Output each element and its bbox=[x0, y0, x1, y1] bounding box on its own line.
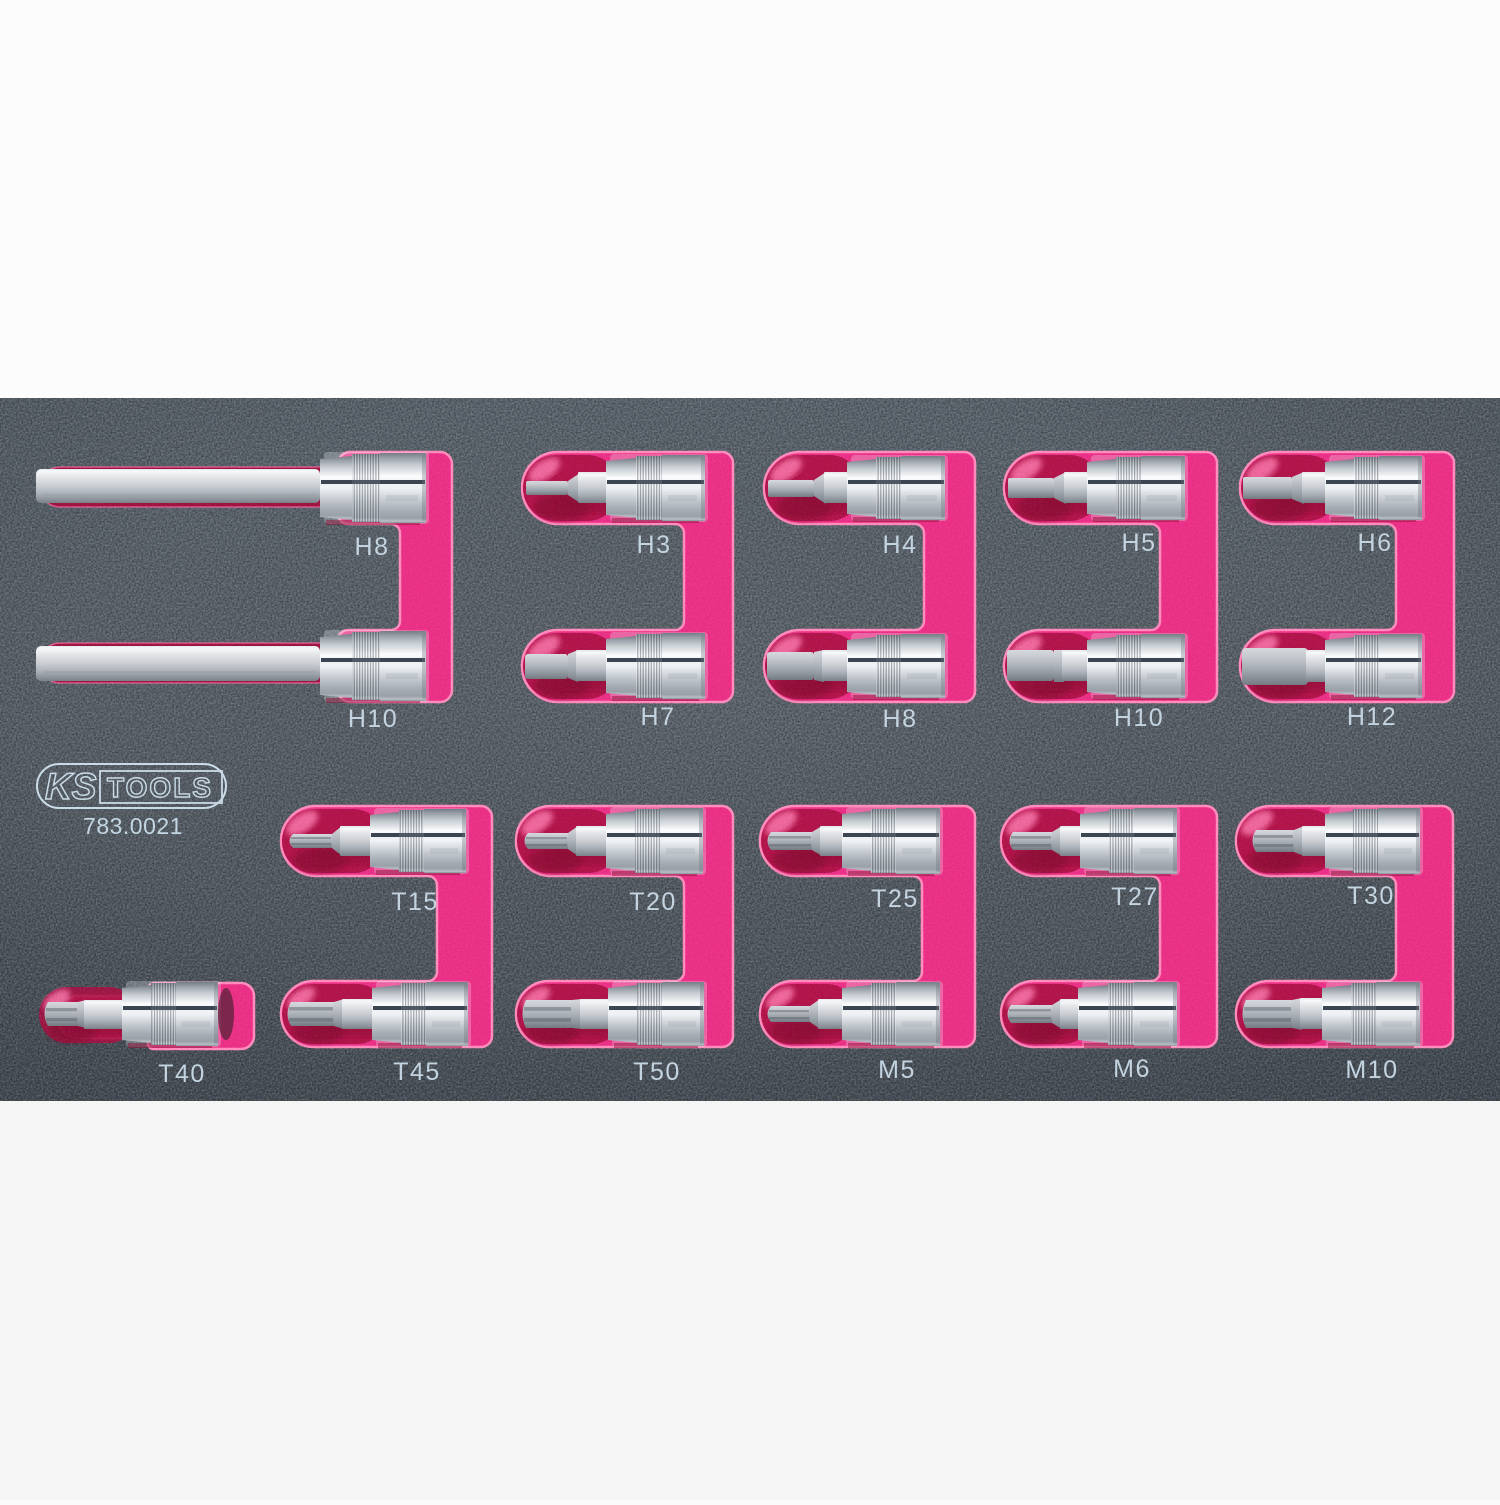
svg-text:H8: H8 bbox=[355, 533, 390, 561]
svg-text:T30: T30 bbox=[1347, 882, 1395, 910]
svg-text:H5: H5 bbox=[1122, 529, 1157, 557]
svg-text:H4: H4 bbox=[883, 531, 918, 559]
svg-text:T25: T25 bbox=[871, 885, 919, 913]
svg-text:T20: T20 bbox=[629, 888, 677, 916]
svg-text:H3: H3 bbox=[637, 531, 672, 559]
svg-text:M6: M6 bbox=[1113, 1055, 1151, 1083]
svg-text:TOOLS: TOOLS bbox=[107, 772, 213, 803]
svg-text:KS: KS bbox=[45, 766, 97, 807]
svg-text:T27: T27 bbox=[1111, 883, 1159, 911]
svg-text:M5: M5 bbox=[878, 1056, 916, 1084]
svg-text:T50: T50 bbox=[633, 1058, 681, 1086]
svg-text:T45: T45 bbox=[393, 1058, 441, 1086]
svg-text:H10: H10 bbox=[1114, 704, 1164, 732]
svg-text:783.0021: 783.0021 bbox=[83, 813, 183, 839]
svg-text:T15: T15 bbox=[391, 888, 439, 916]
svg-text:H12: H12 bbox=[1347, 703, 1397, 731]
svg-text:H7: H7 bbox=[641, 703, 676, 731]
svg-text:M10: M10 bbox=[1345, 1056, 1398, 1084]
svg-text:H6: H6 bbox=[1358, 529, 1393, 557]
svg-text:T40: T40 bbox=[158, 1060, 206, 1088]
svg-text:H10: H10 bbox=[348, 705, 398, 733]
svg-text:H8: H8 bbox=[883, 705, 918, 733]
